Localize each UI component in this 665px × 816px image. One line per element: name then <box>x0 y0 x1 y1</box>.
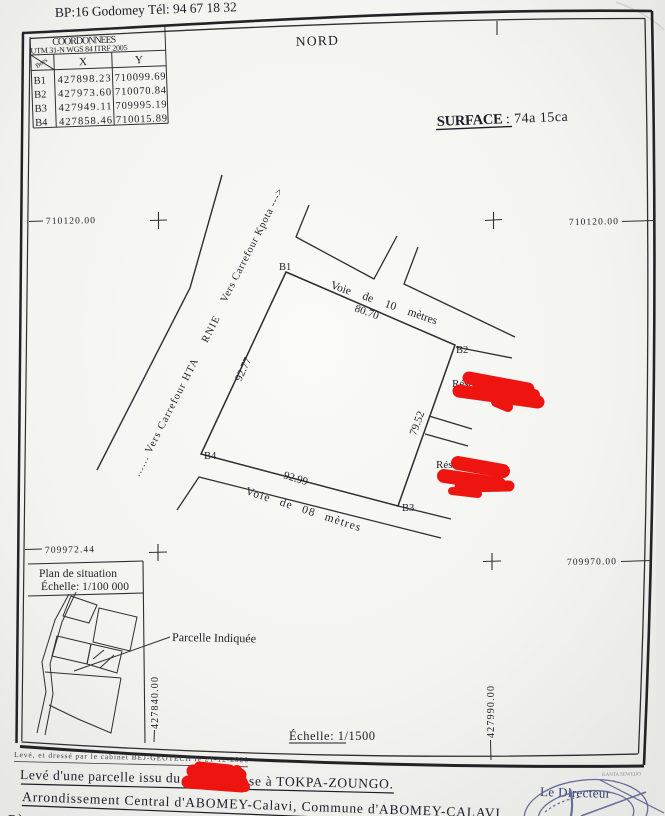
svg-text:KANTA SEWEDO: KANTA SEWEDO <box>602 772 641 778</box>
svg-text:427973.60: 427973.60 <box>58 87 111 100</box>
svg-text:Échelle: 1/1500: Échelle: 1/1500 <box>289 729 375 743</box>
svg-text:427840.00: 427840.00 <box>150 677 161 729</box>
svg-text:709995.19: 709995.19 <box>115 99 166 112</box>
svg-text:710070.84: 710070.84 <box>115 85 167 98</box>
svg-text:710120.00: 710120.00 <box>569 217 618 228</box>
svg-text:Y: Y <box>135 54 143 66</box>
svg-text:B1: B1 <box>33 75 46 86</box>
svg-text:710120.00: 710120.00 <box>46 216 95 227</box>
svg-text:710099.69: 710099.69 <box>114 71 165 84</box>
svg-text:710015.89: 710015.89 <box>116 113 167 126</box>
svg-text:427898.23: 427898.23 <box>57 73 110 86</box>
svg-text:427949.11: 427949.11 <box>58 101 111 114</box>
svg-text:427858.46: 427858.46 <box>59 115 112 128</box>
svg-text:B4: B4 <box>204 451 217 462</box>
svg-text:709972.44: 709972.44 <box>45 545 94 556</box>
svg-text:Échelle: 1/100 000: Échelle: 1/100 000 <box>41 579 129 593</box>
svg-text:B2: B2 <box>456 345 468 356</box>
svg-text:: 74a 15ca: : 74a 15ca <box>506 110 569 128</box>
svg-text:709970.00: 709970.00 <box>567 557 616 568</box>
svg-text:B3: B3 <box>34 103 47 114</box>
svg-text:Plan de situation: Plan de situation <box>39 568 117 580</box>
svg-text:Rèp: Rèp <box>8 812 30 816</box>
svg-text:Parcelle Indiquée: Parcelle Indiquée <box>172 630 256 645</box>
svg-text:B4: B4 <box>35 117 48 128</box>
svg-text:B2: B2 <box>34 89 47 100</box>
svg-text:B1: B1 <box>279 262 291 273</box>
svg-text:X: X <box>79 56 87 68</box>
svg-text:427990.00: 427990.00 <box>486 686 497 738</box>
